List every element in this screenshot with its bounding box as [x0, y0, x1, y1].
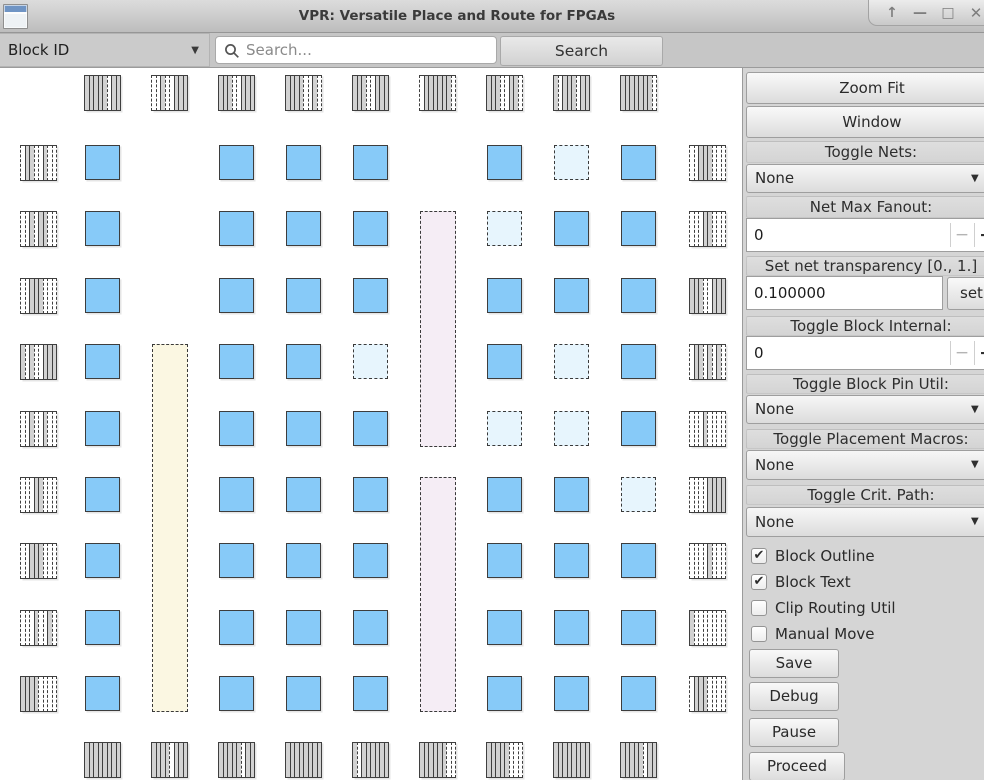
set-button[interactable]: set	[947, 277, 984, 310]
io-block[interactable]	[621, 742, 657, 778]
clb-block[interactable]	[286, 278, 321, 313]
io-subtile-used	[250, 742, 256, 778]
io-block[interactable]	[690, 411, 726, 447]
io-block[interactable]	[21, 543, 57, 579]
io-subtile-free	[451, 742, 457, 778]
io-subtile-used	[183, 742, 189, 778]
io-block[interactable]	[690, 543, 726, 579]
io-subtile-used	[585, 742, 591, 778]
clb-block[interactable]	[621, 344, 656, 379]
toggle-placement-macros-dropdown[interactable]: None ▼	[746, 450, 984, 480]
net-max-fanout-label: Net Max Fanout:	[746, 196, 984, 218]
io-block[interactable]	[420, 742, 456, 778]
checked-checkbox-icon[interactable]: ✔	[751, 548, 767, 564]
io-block[interactable]	[353, 742, 389, 778]
io-subtile-used	[585, 75, 591, 111]
unchecked-checkbox-icon[interactable]	[751, 600, 767, 616]
io-subtile-used	[384, 742, 390, 778]
clb-block[interactable]	[85, 145, 120, 180]
checkbox-block-outline[interactable]: ✔Block Outline	[751, 544, 981, 568]
clb-block[interactable]	[85, 610, 120, 645]
minimize-icon[interactable]: —	[909, 3, 931, 23]
io-block[interactable]	[286, 75, 322, 111]
checkbox-block-text[interactable]: ✔Block Text	[751, 570, 981, 594]
chevron-down-icon: ▼	[191, 34, 199, 67]
io-block[interactable]	[554, 75, 590, 111]
toggle-crit-path-label: Toggle Crit. Path:	[746, 485, 984, 505]
net-max-fanout-spinner[interactable]: 0 − +	[746, 218, 984, 252]
window-title: VPR: Versatile Place and Route for FPGAs	[60, 0, 854, 33]
clb-block[interactable]	[554, 477, 589, 512]
unchecked-checkbox-icon[interactable]	[751, 626, 767, 642]
empty-grid-block[interactable]	[621, 477, 656, 512]
vpr-window: VPR: Versatile Place and Route for FPGAs…	[0, 0, 984, 780]
io-subtile-free	[721, 145, 727, 181]
empty-grid-block[interactable]	[554, 411, 589, 446]
io-block[interactable]	[690, 676, 726, 712]
io-block[interactable]	[21, 610, 57, 646]
io-block[interactable]	[21, 676, 57, 712]
io-subtile-used	[52, 344, 58, 380]
debug-button[interactable]: Debug	[749, 682, 839, 711]
chevron-down-icon: ▼	[971, 508, 979, 536]
clb-block[interactable]	[219, 477, 254, 512]
maximize-icon[interactable]: □	[937, 3, 959, 23]
toggle-block-pin-util-dropdown[interactable]: None ▼	[746, 395, 984, 424]
toggle-nets-dropdown[interactable]: None ▼	[746, 164, 984, 193]
net-transparency-input[interactable]: 0.100000	[746, 276, 943, 310]
zoom-fit-button[interactable]: Zoom Fit	[746, 72, 984, 104]
io-subtile-free	[721, 211, 727, 247]
block-id-dropdown-value: Block ID	[8, 34, 69, 67]
clb-block[interactable]	[286, 411, 321, 446]
io-subtile-free	[52, 543, 58, 579]
spinner-increment-button[interactable]: +	[974, 337, 984, 369]
io-block[interactable]	[152, 75, 188, 111]
io-block[interactable]	[487, 742, 523, 778]
save-button[interactable]: Save	[749, 649, 839, 678]
io-block[interactable]	[152, 742, 188, 778]
clb-block[interactable]	[353, 477, 388, 512]
clb-block[interactable]	[353, 411, 388, 446]
io-subtile-used	[721, 278, 727, 314]
clb-block[interactable]	[487, 278, 522, 313]
io-block[interactable]	[21, 211, 57, 247]
clb-block[interactable]	[85, 411, 120, 446]
io-subtile-free	[451, 75, 457, 111]
search-toolbar: Block ID ▼ Search	[0, 33, 984, 68]
io-subtile-free	[518, 75, 524, 111]
net-transparency-value: 0.100000	[754, 277, 826, 309]
clb-block[interactable]	[487, 543, 522, 578]
clb-block[interactable]	[85, 477, 120, 512]
io-block[interactable]	[554, 742, 590, 778]
io-subtile-free	[52, 477, 58, 513]
io-subtile-free	[721, 610, 727, 646]
chevron-down-icon: ▼	[971, 396, 979, 423]
control-sidebar: Zoom Fit Window Toggle Nets: None ▼ Net …	[742, 68, 984, 780]
clb-block[interactable]	[554, 610, 589, 645]
toggle-block-internal-value: 0	[754, 337, 764, 369]
search-icon	[224, 43, 240, 59]
clb-block[interactable]	[621, 610, 656, 645]
empty-grid-block[interactable]	[487, 211, 522, 246]
io-subtile-used	[250, 75, 256, 111]
clb-block[interactable]	[487, 145, 522, 180]
checked-checkbox-icon[interactable]: ✔	[751, 574, 767, 590]
clb-block[interactable]	[487, 344, 522, 379]
net-max-fanout-value: 0	[754, 219, 764, 251]
io-block[interactable]	[690, 344, 726, 380]
clb-block[interactable]	[85, 211, 120, 246]
io-block[interactable]	[219, 742, 255, 778]
clb-block[interactable]	[487, 676, 522, 711]
io-subtile-used	[384, 75, 390, 111]
toggle-nets-label: Toggle Nets:	[746, 141, 984, 163]
io-subtile-free	[52, 411, 58, 447]
checkbox-clip-routing-util[interactable]: Clip Routing Util	[751, 596, 981, 620]
clb-block[interactable]	[621, 278, 656, 313]
io-block[interactable]	[353, 75, 389, 111]
empty-grid-block[interactable]	[487, 411, 522, 446]
clb-block[interactable]	[487, 610, 522, 645]
toggle-block-pin-util-label: Toggle Block Pin Util:	[746, 374, 984, 394]
placement-macro-block[interactable]	[420, 211, 456, 447]
close-icon[interactable]: ✕	[965, 3, 984, 23]
io-subtile-free	[317, 75, 323, 111]
chevron-down-icon: ▼	[971, 165, 979, 192]
io-block[interactable]	[621, 75, 657, 111]
spinner-decrement-button[interactable]: −	[950, 337, 974, 369]
clb-block[interactable]	[353, 145, 388, 180]
clb-block[interactable]	[219, 610, 254, 645]
io-subtile-free	[721, 344, 727, 380]
io-subtile-free	[52, 278, 58, 314]
clb-block[interactable]	[286, 543, 321, 578]
clb-block[interactable]	[286, 676, 321, 711]
clb-block[interactable]	[554, 278, 589, 313]
clb-block[interactable]	[219, 411, 254, 446]
placement-canvas[interactable]	[0, 68, 742, 780]
clb-block[interactable]	[85, 676, 120, 711]
io-subtile-used	[116, 75, 122, 111]
chevron-down-icon: ▼	[971, 451, 979, 479]
io-subtile-free	[518, 742, 524, 778]
empty-grid-block[interactable]	[554, 344, 589, 379]
placement-macro-block[interactable]	[152, 344, 188, 712]
clb-block[interactable]	[286, 610, 321, 645]
io-subtile-used	[116, 742, 122, 778]
checkbox-label: Clip Routing Util	[775, 599, 896, 617]
clb-block[interactable]	[85, 278, 120, 313]
io-subtile-used	[652, 742, 658, 778]
io-subtile-free	[652, 75, 658, 111]
spinner-increment-button[interactable]: +	[974, 219, 984, 251]
net-transparency-label: Set net transparency [0., 1.]	[746, 256, 984, 276]
clb-block[interactable]	[286, 477, 321, 512]
clb-block[interactable]	[621, 145, 656, 180]
io-subtile-used	[721, 477, 727, 513]
clb-block[interactable]	[353, 543, 388, 578]
empty-grid-block[interactable]	[353, 344, 388, 379]
io-block[interactable]	[487, 75, 523, 111]
clb-block[interactable]	[219, 543, 254, 578]
clb-block[interactable]	[353, 610, 388, 645]
io-subtile-free	[52, 211, 58, 247]
io-block[interactable]	[85, 75, 121, 111]
search-button[interactable]: Search	[500, 36, 663, 66]
toggle-block-internal-label: Toggle Block Internal:	[746, 316, 984, 336]
titlebar[interactable]: VPR: Versatile Place and Route for FPGAs…	[0, 0, 984, 33]
io-subtile-free	[52, 610, 58, 646]
clb-block[interactable]	[621, 411, 656, 446]
clb-block[interactable]	[621, 543, 656, 578]
checkbox-label: Manual Move	[775, 625, 875, 643]
clb-block[interactable]	[219, 278, 254, 313]
clb-block[interactable]	[554, 543, 589, 578]
io-block[interactable]	[420, 75, 456, 111]
toggle-placement-macros-label: Toggle Placement Macros:	[746, 429, 984, 449]
io-block[interactable]	[690, 610, 726, 646]
clb-block[interactable]	[286, 145, 321, 180]
clb-block[interactable]	[85, 344, 120, 379]
io-subtile-free	[52, 676, 58, 712]
io-block[interactable]	[690, 211, 726, 247]
io-subtile-free	[721, 411, 727, 447]
clb-block[interactable]	[554, 676, 589, 711]
clb-block[interactable]	[219, 676, 254, 711]
clb-block[interactable]	[621, 211, 656, 246]
io-subtile-free	[52, 145, 58, 181]
io-subtile-free	[721, 543, 727, 579]
window-controls: ↑ — □ ✕	[868, 0, 984, 26]
checkbox-manual-move[interactable]: Manual Move	[751, 622, 981, 646]
clb-block[interactable]	[353, 278, 388, 313]
io-subtile-used	[317, 742, 323, 778]
io-block[interactable]	[21, 145, 57, 181]
clb-block[interactable]	[219, 211, 254, 246]
placement-macro-block[interactable]	[420, 477, 456, 712]
io-block[interactable]	[21, 411, 57, 447]
clb-block[interactable]	[353, 676, 388, 711]
io-subtile-free	[721, 676, 727, 712]
toggle-nets-value: None	[755, 165, 794, 192]
clb-block[interactable]	[487, 477, 522, 512]
toggle-block-internal-spinner[interactable]: 0 − +	[746, 336, 984, 370]
io-block[interactable]	[21, 344, 57, 380]
io-block[interactable]	[690, 477, 726, 513]
checkbox-label: Block Text	[775, 573, 851, 591]
shade-icon[interactable]: ↑	[881, 3, 903, 23]
io-block[interactable]	[690, 145, 726, 181]
spinner-decrement-button[interactable]: −	[950, 219, 974, 251]
search-input[interactable]	[246, 38, 491, 62]
toggle-crit-path-value: None	[755, 508, 794, 536]
io-block[interactable]	[85, 742, 121, 778]
empty-grid-block[interactable]	[554, 145, 589, 180]
io-subtile-used	[183, 75, 189, 111]
toggle-crit-path-dropdown[interactable]: None ▼	[746, 507, 984, 537]
checkbox-label: Block Outline	[775, 547, 875, 565]
clb-block[interactable]	[219, 344, 254, 379]
block-id-dropdown[interactable]: Block ID ▼	[0, 33, 210, 67]
clb-block[interactable]	[353, 211, 388, 246]
clb-block[interactable]	[621, 676, 656, 711]
io-block[interactable]	[219, 75, 255, 111]
proceed-button[interactable]: Proceed	[749, 752, 845, 780]
io-block[interactable]	[286, 742, 322, 778]
window-button[interactable]: Window	[746, 106, 984, 138]
toggle-placement-macros-value: None	[755, 451, 794, 479]
io-block[interactable]	[21, 477, 57, 513]
toggle-block-pin-util-value: None	[755, 396, 794, 423]
clb-block[interactable]	[286, 344, 321, 379]
search-entry[interactable]	[215, 36, 497, 64]
window-icon	[3, 4, 28, 29]
clb-block[interactable]	[286, 211, 321, 246]
pause-button[interactable]: Pause	[749, 718, 839, 747]
io-block[interactable]	[21, 278, 57, 314]
clb-block[interactable]	[219, 145, 254, 180]
io-block[interactable]	[690, 278, 726, 314]
clb-block[interactable]	[554, 211, 589, 246]
clb-block[interactable]	[85, 543, 120, 578]
